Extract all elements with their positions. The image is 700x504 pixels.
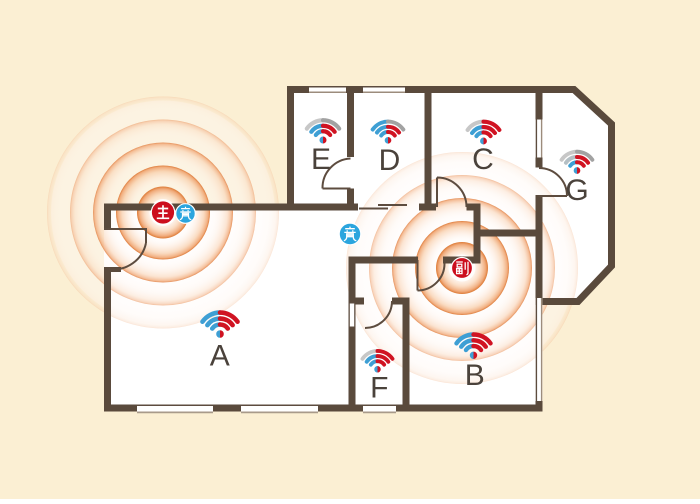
svg-text:E: E: [311, 143, 331, 176]
svg-text:F: F: [370, 372, 388, 405]
svg-text:G: G: [565, 174, 588, 207]
svg-text:B: B: [465, 359, 485, 392]
svg-text:A: A: [210, 340, 230, 373]
svg-text:C: C: [472, 143, 494, 176]
svg-text:D: D: [379, 144, 401, 177]
